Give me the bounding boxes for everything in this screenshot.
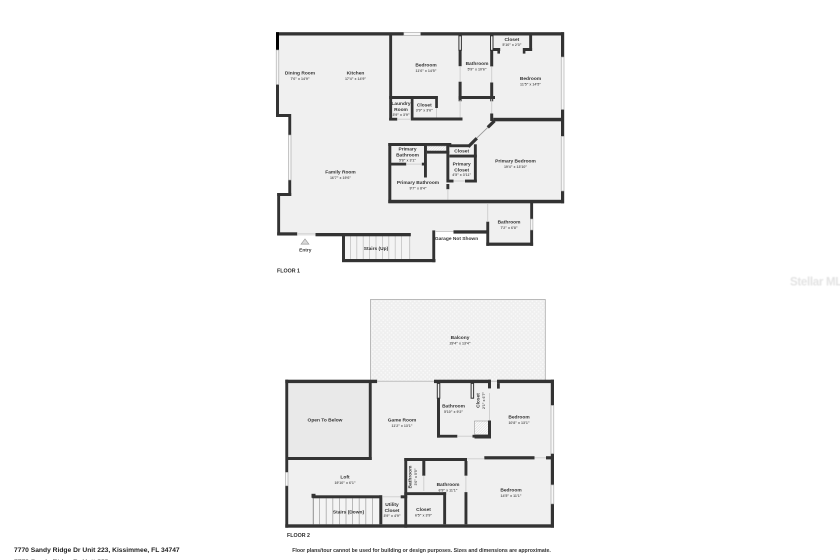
svg-text:FLOOR 2: FLOOR 2 [287,533,310,539]
svg-text:3'9" x 3'9": 3'9" x 3'9" [392,113,409,117]
svg-text:29'4" x 13'4": 29'4" x 13'4" [449,341,470,345]
svg-text:7'6" x 14'9": 7'6" x 14'9" [290,77,309,81]
svg-text:FLOOR 1: FLOOR 1 [277,269,300,275]
svg-text:3'6" x 5'5": 3'6" x 5'5" [414,468,418,485]
svg-text:Stairs (Up): Stairs (Up) [364,246,389,252]
svg-text:Balcony: Balcony [451,335,470,341]
svg-text:Primary: Primary [453,161,471,167]
svg-text:6'9" x 11'1": 6'9" x 11'1" [439,488,458,492]
svg-text:Primary Bathroom: Primary Bathroom [397,180,439,186]
svg-text:6'5" x 3'9": 6'5" x 3'9" [415,513,432,517]
svg-text:17'4" x 14'9": 17'4" x 14'9" [345,77,366,81]
svg-text:Open To Below: Open To Below [308,418,343,424]
svg-text:Game Room: Game Room [388,417,417,423]
svg-text:Primary: Primary [398,147,416,153]
svg-text:7770 Sandy Ridge Dr Unit 223,: 7770 Sandy Ridge Dr Unit 223, Kissimmee,… [14,547,180,554]
svg-text:Garage Not Shown: Garage Not Shown [435,236,478,242]
svg-text:11'2" x 13'1": 11'2" x 13'1" [392,424,413,428]
svg-text:Loft: Loft [340,475,350,481]
svg-text:Bathroom: Bathroom [408,466,414,489]
svg-text:Closet: Closet [475,393,481,408]
svg-text:11'5" x 14'5": 11'5" x 14'5" [520,83,541,87]
svg-text:Bathroom: Bathroom [437,482,460,488]
svg-text:Utility: Utility [385,502,399,508]
svg-text:7'2" x 6'8": 7'2" x 6'8" [500,226,517,230]
svg-text:Bathroom: Bathroom [466,61,489,67]
svg-text:Dining Room: Dining Room [285,71,315,77]
svg-text:3'9" x 3'6": 3'9" x 3'6" [416,109,433,113]
svg-text:Floor plans/tour cannot be use: Floor plans/tour cannot be used for buil… [292,548,551,554]
svg-text:5'8" x 3'1": 5'8" x 3'1" [399,158,416,162]
svg-text:Closet: Closet [416,507,431,513]
svg-text:Bedroom: Bedroom [415,62,436,68]
svg-text:Kitchen: Kitchen [347,71,365,77]
svg-text:19'4" x 13'10": 19'4" x 13'10" [504,165,527,169]
svg-text:10'8" x 13'1": 10'8" x 13'1" [508,421,529,425]
svg-text:16'7" x 19'6": 16'7" x 19'6" [330,176,351,180]
svg-text:Bedroom: Bedroom [500,487,521,493]
svg-text:Bedroom: Bedroom [508,415,529,421]
svg-text:5'10" x 9'2": 5'10" x 9'2" [444,410,463,414]
svg-text:5'10" x 2'3": 5'10" x 2'3" [502,43,521,47]
svg-text:2'1" x 6'7": 2'1" x 6'7" [482,392,486,409]
svg-text:4'5" x 3'11": 4'5" x 3'11" [452,173,471,177]
svg-text:Primary Bedroom: Primary Bedroom [495,158,536,164]
svg-text:Bathroom: Bathroom [442,403,465,409]
svg-text:19'10" x 6'1": 19'10" x 6'1" [334,481,355,485]
svg-text:Laundry: Laundry [391,101,410,107]
svg-text:Family Room: Family Room [325,170,355,176]
svg-text:Bedroom: Bedroom [520,76,541,82]
svg-text:5'9" x 10'6": 5'9" x 10'6" [467,67,486,71]
svg-text:Stellar MLS: Stellar MLS [790,277,840,289]
svg-text:3'9" x 4'9": 3'9" x 4'9" [383,514,400,518]
svg-text:Bathroom: Bathroom [498,220,521,226]
svg-text:Closet: Closet [454,148,469,154]
svg-text:9'7" x 8'4": 9'7" x 8'4" [409,187,426,191]
svg-text:11'6" x 14'5": 11'6" x 14'5" [416,69,437,73]
svg-text:Entry: Entry [299,248,312,254]
svg-text:14'5" x 11'1": 14'5" x 11'1" [501,494,522,498]
svg-text:Stairs (Down): Stairs (Down) [333,509,365,515]
